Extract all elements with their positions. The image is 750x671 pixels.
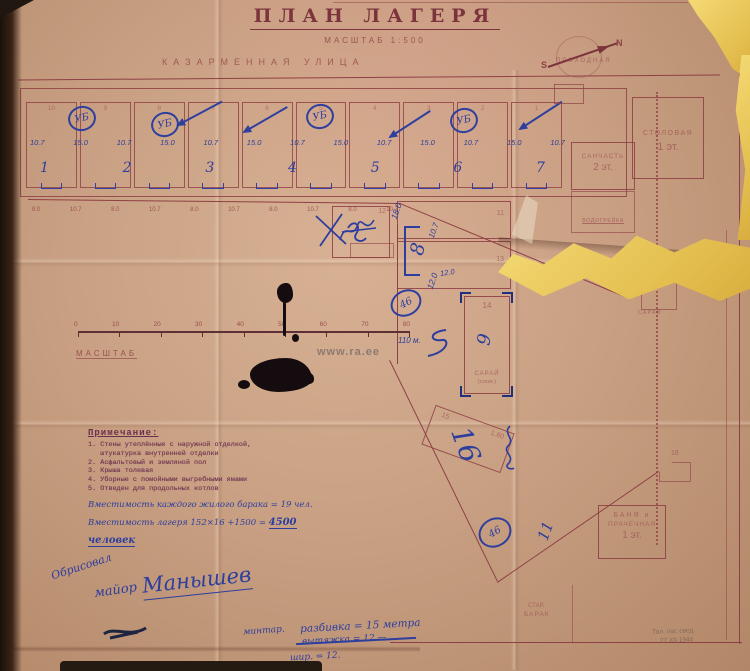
page-title: ПЛАН ЛАГЕРЯ xyxy=(250,5,500,30)
dimension-label: 15.0 xyxy=(420,138,435,147)
gatehouse-label: ПРОХОДНАЯ xyxy=(556,58,612,64)
note-line: 4. Уборные с помойными выгребными ямами xyxy=(88,476,338,485)
circled-46-mark: 46 xyxy=(386,284,426,322)
blue-scribble xyxy=(500,424,520,472)
tick-label: 0 xyxy=(74,321,78,328)
compass-south-label: S xyxy=(541,60,547,70)
inner-fence-dotted xyxy=(656,92,658,545)
unit-number: 5 xyxy=(371,160,380,176)
signature-rank: майор xyxy=(93,580,138,601)
blue-scribble xyxy=(422,326,452,360)
note-line: 1. Стены утеплённые с наружной отделкой, xyxy=(88,441,338,450)
calc-word: минтар. xyxy=(243,625,285,638)
scale-tick xyxy=(202,333,203,337)
blue-corner-mark xyxy=(502,292,513,303)
note-line: 5. Отведен для продольных котлов xyxy=(88,485,338,494)
building-11-number: 11 xyxy=(497,210,504,217)
dining-hall-floors: 1 эт. xyxy=(633,141,703,153)
blue-corner-mark xyxy=(502,386,513,397)
calc-line-1: разбивка = 15 метра xyxy=(300,617,421,635)
scale-tick xyxy=(119,333,120,337)
scale-tick xyxy=(78,333,79,337)
medical-unit-floors: 2 эт. xyxy=(572,162,634,173)
capacity-note-2: Вместимость лагеря 152×16 +1500 = xyxy=(88,518,269,528)
photographed-plan-document: ПЛАН ЛАГЕРЯ МАСШТАБ 1:500 КАЗАРМЕННАЯ УЛ… xyxy=(0,0,750,671)
dimension-label: 10.7 xyxy=(550,138,565,147)
ink-blot xyxy=(238,380,250,389)
spacing-label: 8.0 xyxy=(190,207,198,213)
barrack-old-number: 10 xyxy=(27,105,76,112)
spacing-label: 8.0 xyxy=(269,207,277,213)
dining-hall-outline: СТОЛОВАЯ 1 эт. xyxy=(632,97,704,179)
unit-number: 4 xyxy=(288,160,297,176)
street-line xyxy=(18,75,720,81)
gatehouse-outline xyxy=(554,84,584,104)
dining-hall-label: СТОЛОВАЯ xyxy=(633,130,703,137)
dimension-label: 10.7 xyxy=(30,138,45,147)
building-9-mark: 9 xyxy=(473,332,496,347)
water-heater-label: ВОДОГРЕЙКА xyxy=(572,218,634,224)
barrack-old-number: 8 xyxy=(135,105,184,112)
old-barrack-label-2: БАРАК xyxy=(524,611,549,618)
paper-tear-right-edge xyxy=(731,55,750,240)
compass-north-label: N xyxy=(616,38,623,48)
scale-end-note: 110 м. xyxy=(398,336,421,345)
building-13-number: 13 xyxy=(496,256,504,263)
ink-blot xyxy=(292,334,299,342)
dimension-label: 10.7 xyxy=(290,138,305,147)
dimension-label: 15.0 xyxy=(334,138,349,147)
tick-label: 70 xyxy=(361,321,368,328)
building-16-outline xyxy=(659,462,691,482)
spacing-label: 8.0 xyxy=(32,207,40,213)
unit-number: 2 xyxy=(123,160,132,176)
blue-corner-mark xyxy=(460,292,471,303)
dimension-label: 15.0 xyxy=(73,138,88,147)
dimension-label: 15.0 xyxy=(507,138,522,147)
pen-strike xyxy=(100,620,150,642)
old-barrack-line xyxy=(572,585,573,642)
tick-label: 40 xyxy=(237,321,244,328)
dimension-label: 10.7 xyxy=(464,138,479,147)
tick-label: 60 xyxy=(320,321,327,328)
medical-unit-outline: САНЧАСТЬ 2 эт. xyxy=(571,142,635,190)
scale-note: МАСШТАБ 1:500 xyxy=(300,36,450,45)
mark-11: 11 xyxy=(534,519,557,543)
scale-tick-labels: 01020304050607080 xyxy=(74,321,410,328)
top-boundary-line xyxy=(333,2,688,3)
scale-label: МАСШТАБ xyxy=(76,349,137,359)
tick-label: 10 xyxy=(112,321,119,328)
spacing-label: 10.7 xyxy=(149,207,161,213)
building-14-outline: 14 9 САРАЙ (слом.) xyxy=(464,296,510,394)
signature-name: Манышев xyxy=(141,562,253,600)
blue-corner-mark xyxy=(460,386,471,397)
barrack-old-number: 4 xyxy=(350,105,399,112)
pencil-note-2: 27 XII 1944 xyxy=(660,636,693,644)
scale-tick xyxy=(368,333,369,337)
tick-label: 80 xyxy=(403,321,410,328)
building-14-name: САРАЙ xyxy=(465,371,509,377)
unit-number: 6 xyxy=(453,160,462,176)
barrack-unit-numbers: 1234567 xyxy=(40,160,545,176)
old-barrack-label-1: СТАР. xyxy=(528,603,544,609)
scale-bar xyxy=(78,331,410,338)
dimension-label: 10.7 xyxy=(203,138,218,147)
dimension-label: 10.7 xyxy=(117,138,132,147)
shed-label: САРАЙ xyxy=(638,310,661,316)
dimension-label: 15.0 xyxy=(247,138,262,147)
spacing-label: 10.7 xyxy=(228,207,240,213)
bath-floors: 1 эт. xyxy=(599,530,665,541)
scale-tick xyxy=(161,333,162,337)
blue-x-scribble xyxy=(312,210,368,250)
bath-laundry-outline: БАНЯ и ПРАЧЕЧНАЯ 1 эт. xyxy=(598,505,666,559)
archive-watermark: www.ra.ee xyxy=(317,346,380,358)
building-14-note: (слом.) xyxy=(465,379,509,385)
pencil-note-1: Тал. лаг. свед. xyxy=(652,627,695,635)
dimension-label: 15.0 xyxy=(160,138,175,147)
note-line: штукатурка внутренней отделки xyxy=(88,450,338,459)
signature-verb: Обрисовал xyxy=(50,551,114,583)
ink-blot xyxy=(300,372,314,384)
tick-label: 30 xyxy=(195,321,202,328)
medical-unit-label: САНЧАСТЬ xyxy=(572,153,634,160)
barrack-dimension-labels: 10.715.010.715.010.715.010.715.010.715.0… xyxy=(30,138,565,147)
bath-label: БАНЯ и xyxy=(599,512,665,519)
street-label: КАЗАРМЕННАЯ УЛИЦА xyxy=(162,57,364,67)
notes-block: Примечание: 1. Стены утеплённые с наружн… xyxy=(88,428,338,548)
capacity-note-1: Вместимость каждого жилого барака = 19 ч… xyxy=(88,500,338,510)
building-16-number: 16 xyxy=(671,450,679,457)
ink-drip xyxy=(283,300,286,336)
photo-left-edge xyxy=(0,0,22,671)
spacing-label: 10.7 xyxy=(70,207,82,213)
note-line: 3. Крыша толевая xyxy=(88,467,338,476)
unit-number: 3 xyxy=(205,160,214,176)
scale-tick xyxy=(326,333,327,337)
photo-bottom-edge xyxy=(60,661,322,671)
laundry-label: ПРАЧЕЧНАЯ xyxy=(599,521,665,528)
paper-crease xyxy=(0,646,420,652)
water-heater-outline: ВОДОГРЕЙКА xyxy=(571,191,635,233)
tick-label: 20 xyxy=(153,321,160,328)
scale-tick xyxy=(244,333,245,337)
unit-number: 7 xyxy=(536,160,545,176)
building-15-number: 15 xyxy=(440,412,450,421)
unit-number: 1 xyxy=(40,160,49,176)
street-east-line xyxy=(739,58,740,644)
compass-arrowhead-icon xyxy=(597,42,611,53)
notes-title: Примечание: xyxy=(88,428,338,438)
spacing-label: 8.0 xyxy=(111,207,119,213)
